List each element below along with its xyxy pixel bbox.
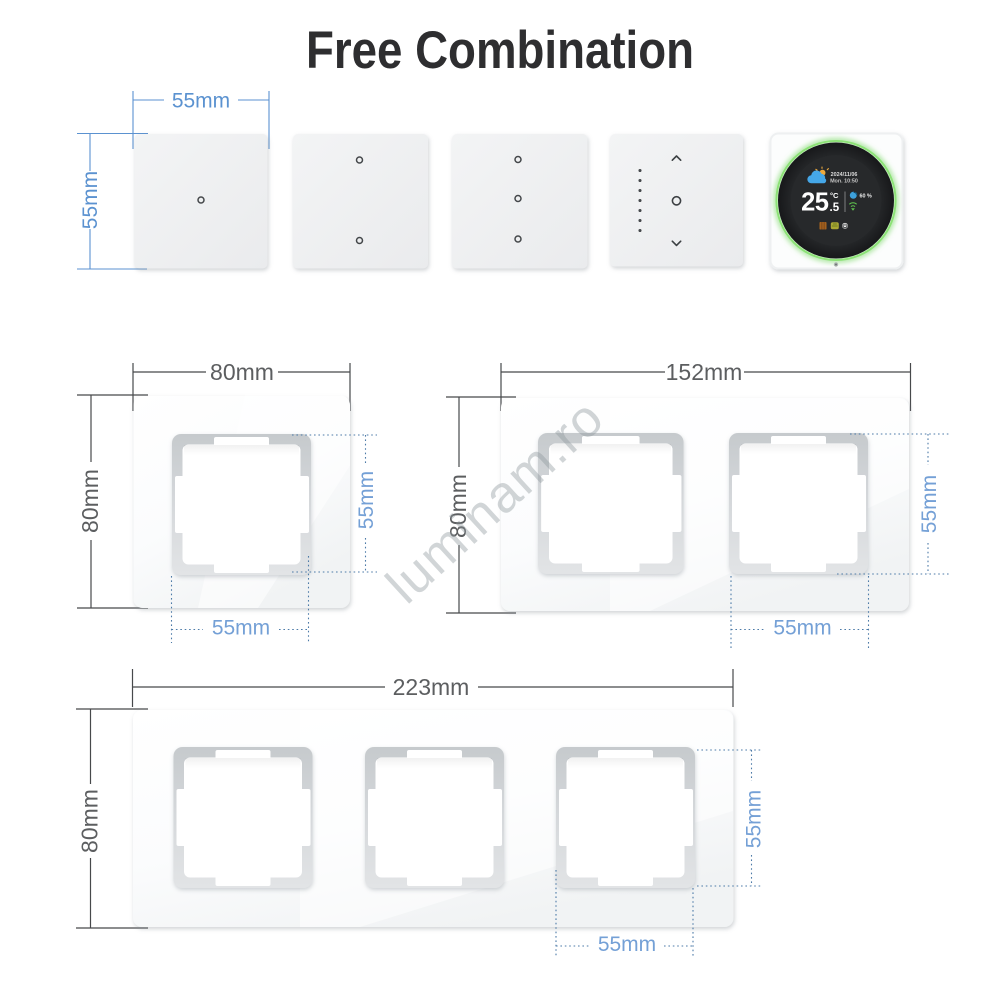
svg-text:152mm: 152mm <box>666 359 743 385</box>
svg-text:223mm: 223mm <box>393 674 470 700</box>
svg-text:60 %: 60 % <box>860 194 872 200</box>
svg-text:.5: .5 <box>830 202 840 214</box>
svg-text:°C: °C <box>830 191 839 200</box>
svg-text:55mm: 55mm <box>743 790 766 848</box>
svg-text:55mm: 55mm <box>355 471 378 529</box>
svg-text:80mm: 80mm <box>210 359 274 385</box>
svg-text:80mm: 80mm <box>77 789 103 853</box>
svg-text:55mm: 55mm <box>773 617 831 640</box>
svg-text:55mm: 55mm <box>172 90 230 113</box>
svg-text:Mon. 10:50: Mon. 10:50 <box>830 179 858 185</box>
svg-text:55mm: 55mm <box>79 171 102 229</box>
svg-text:55mm: 55mm <box>212 617 270 640</box>
svg-text:55mm: 55mm <box>598 933 656 956</box>
svg-text:80mm: 80mm <box>77 469 103 533</box>
svg-text:55mm: 55mm <box>918 475 941 533</box>
svg-text:Free Combination: Free Combination <box>306 21 694 80</box>
svg-text:2024/11/06: 2024/11/06 <box>831 172 858 178</box>
svg-text:25: 25 <box>801 189 829 217</box>
